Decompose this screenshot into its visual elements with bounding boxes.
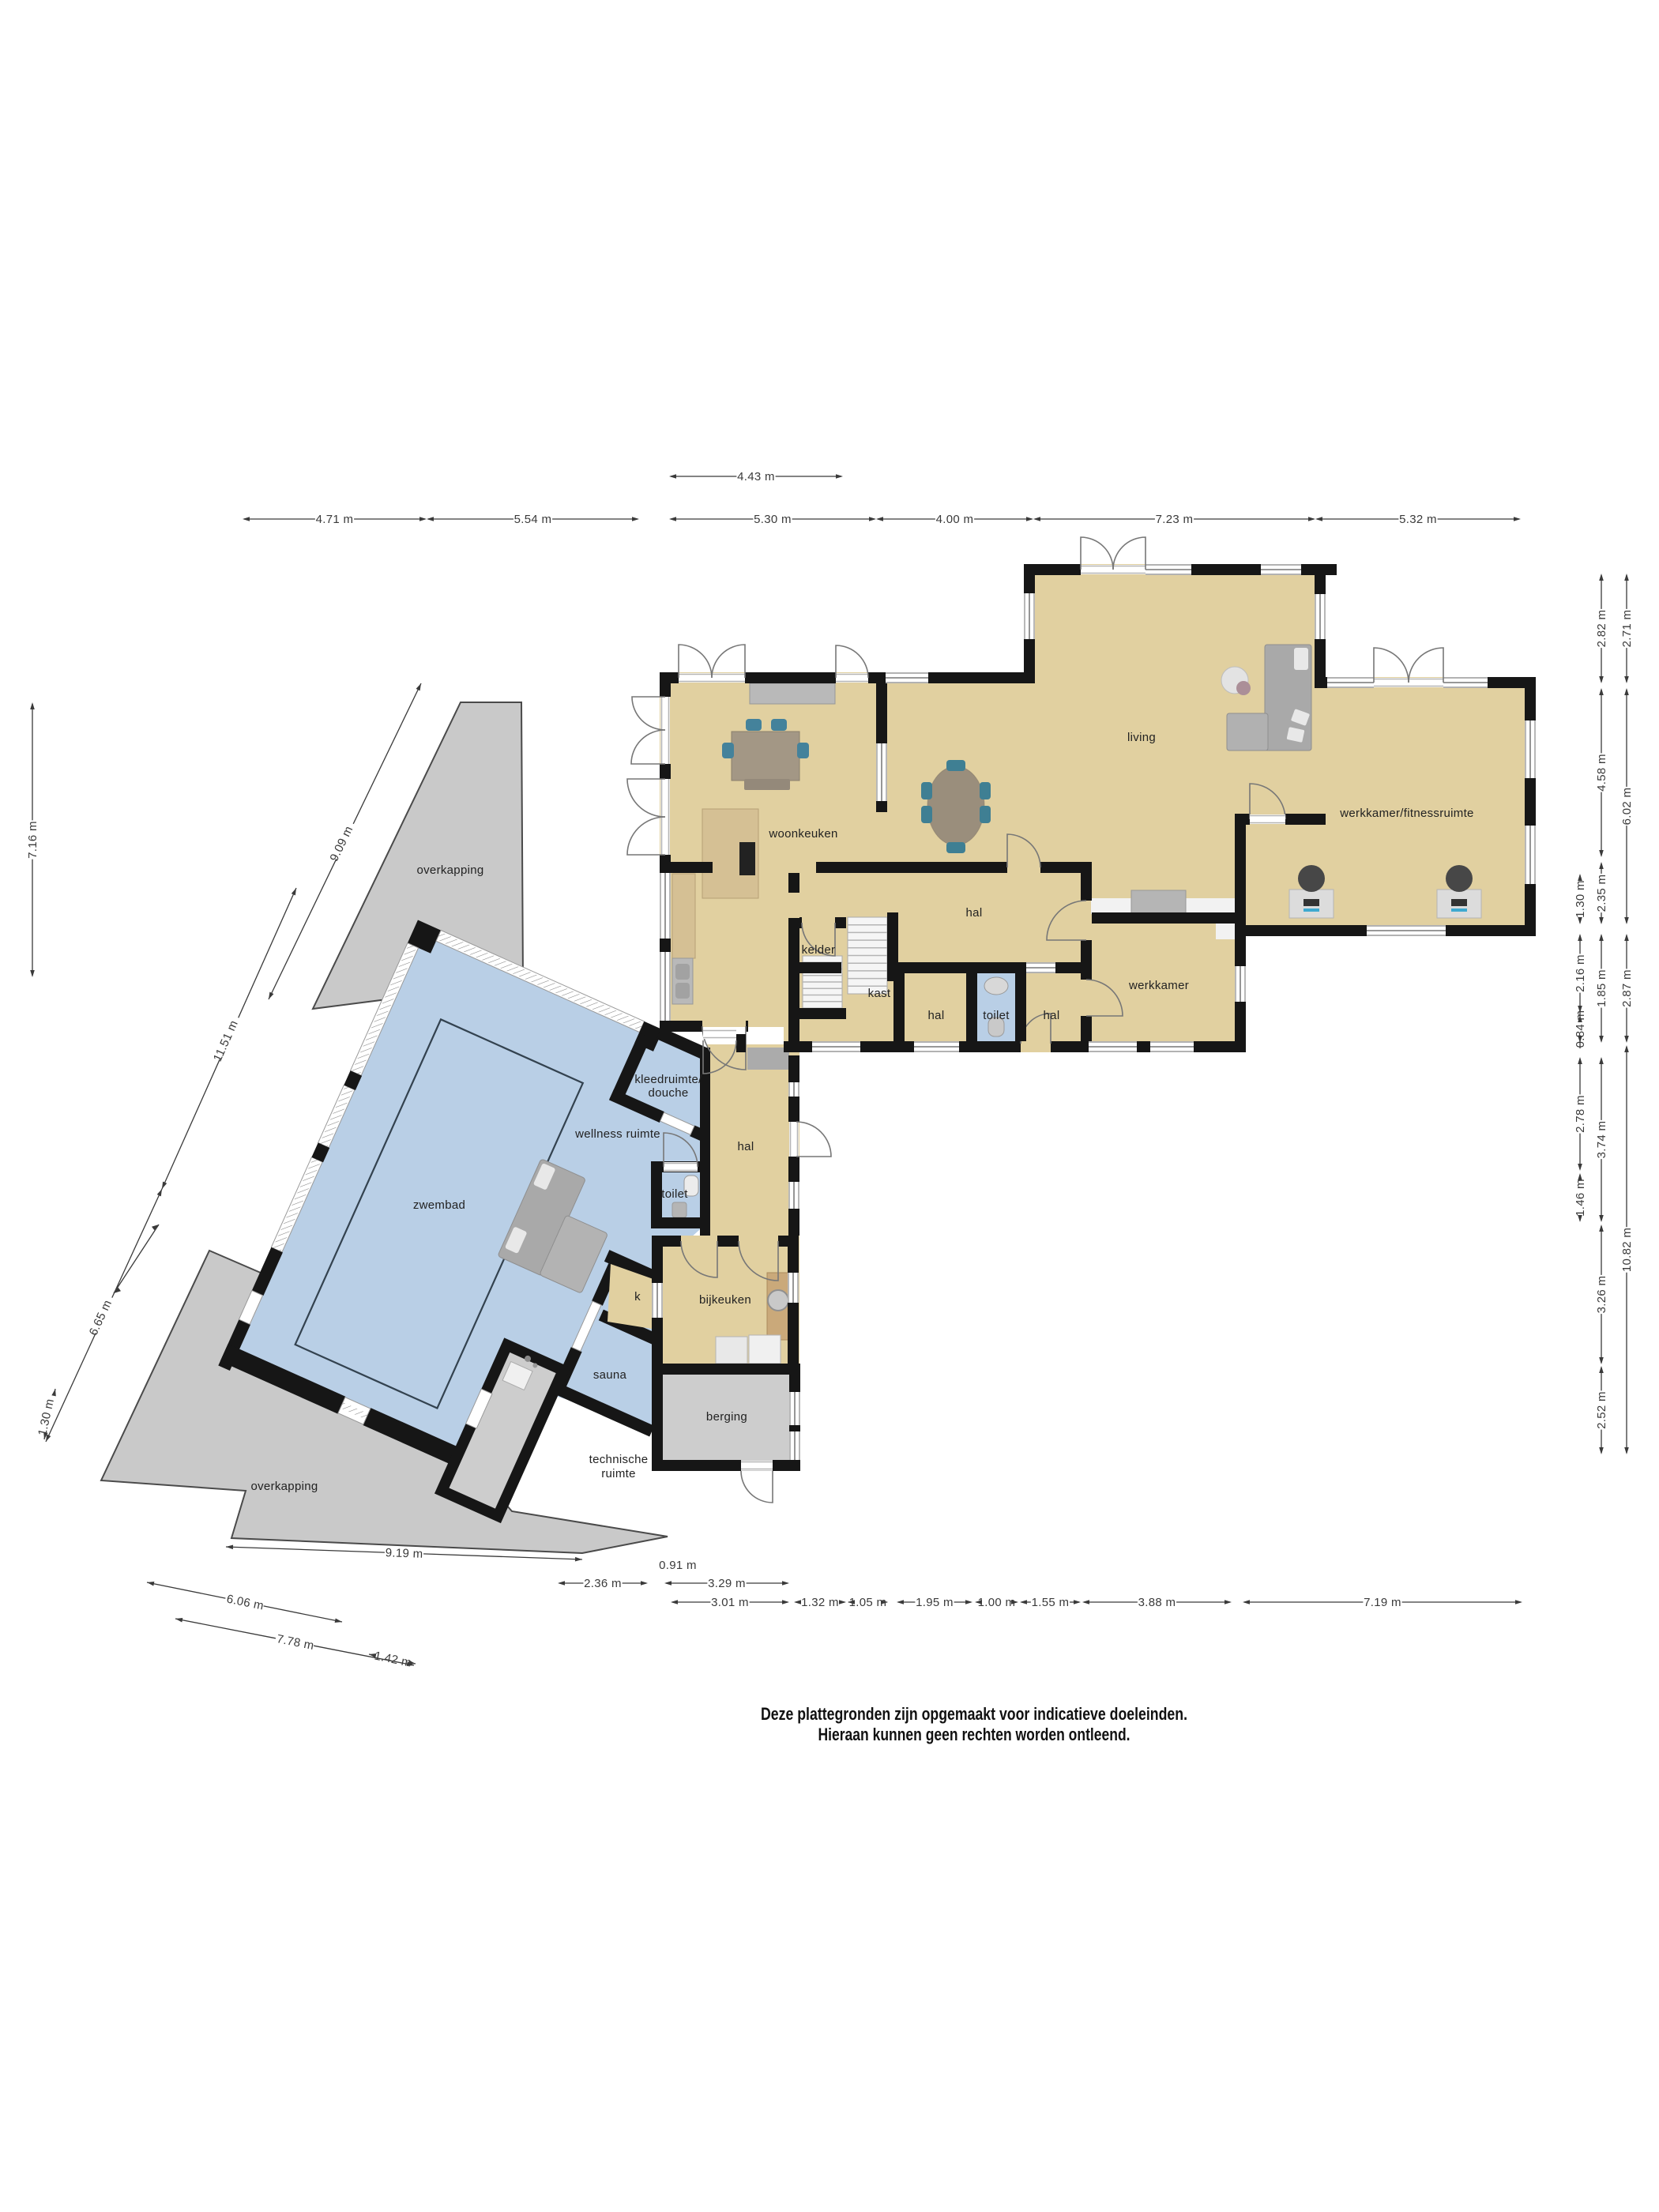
svg-text:3.01 m: 3.01 m — [711, 1596, 749, 1609]
svg-text:1.00 m: 1.00 m — [978, 1596, 1016, 1609]
svg-text:2.78 m: 2.78 m — [1574, 1095, 1587, 1133]
svg-text:ruimte: ruimte — [601, 1467, 635, 1480]
svg-text:7.16 m: 7.16 m — [26, 821, 39, 859]
svg-text:kelder: kelder — [802, 943, 836, 957]
svg-text:zwembad: zwembad — [413, 1198, 465, 1212]
svg-text:douche: douche — [648, 1086, 688, 1100]
svg-text:2.52 m: 2.52 m — [1595, 1391, 1608, 1429]
svg-text:kleedruimte/: kleedruimte/ — [634, 1073, 702, 1086]
svg-text:7.19 m: 7.19 m — [1364, 1596, 1401, 1609]
svg-text:6.02 m: 6.02 m — [1620, 788, 1634, 826]
svg-text:werkkamer: werkkamer — [1128, 979, 1189, 992]
svg-text:hal: hal — [1044, 1009, 1060, 1022]
svg-text:1.30 m: 1.30 m — [1574, 880, 1587, 918]
svg-text:2.36 m: 2.36 m — [584, 1577, 622, 1590]
svg-text:kast: kast — [868, 987, 891, 1000]
svg-text:10.82 m: 10.82 m — [1620, 1228, 1634, 1272]
svg-text:3.74 m: 3.74 m — [1595, 1121, 1608, 1159]
svg-text:2.71 m: 2.71 m — [1620, 610, 1634, 648]
svg-text:wellness ruimte: wellness ruimte — [574, 1127, 660, 1141]
svg-text:toilet: toilet — [983, 1009, 1010, 1022]
svg-text:5.32 m: 5.32 m — [1399, 513, 1437, 526]
svg-text:2.16 m: 2.16 m — [1574, 954, 1587, 992]
svg-text:k: k — [634, 1290, 641, 1303]
svg-text:1.32 m: 1.32 m — [801, 1596, 839, 1609]
svg-text:4.00 m: 4.00 m — [936, 513, 974, 526]
svg-text:0.84 m: 0.84 m — [1574, 1010, 1587, 1048]
svg-text:sauna: sauna — [593, 1368, 627, 1382]
svg-text:Deze plattegronden zijn opgema: Deze plattegronden zijn opgemaakt voor i… — [761, 1704, 1187, 1724]
svg-text:4.58 m: 4.58 m — [1595, 754, 1608, 792]
svg-text:1.05 m: 1.05 m — [849, 1596, 887, 1609]
svg-text:1.95 m: 1.95 m — [916, 1596, 954, 1609]
svg-text:hal: hal — [928, 1009, 945, 1022]
svg-text:living: living — [1127, 731, 1156, 744]
svg-text:overkapping: overkapping — [416, 863, 483, 877]
svg-text:1.46 m: 1.46 m — [1574, 1179, 1587, 1217]
svg-text:3.29 m: 3.29 m — [708, 1577, 746, 1590]
svg-text:3.88 m: 3.88 m — [1138, 1596, 1176, 1609]
svg-text:5.30 m: 5.30 m — [754, 513, 792, 526]
svg-text:3.26 m: 3.26 m — [1595, 1276, 1608, 1314]
svg-text:2.82 m: 2.82 m — [1595, 610, 1608, 648]
svg-text:1.55 m: 1.55 m — [1032, 1596, 1070, 1609]
svg-text:werkkamer/fitnessruimte: werkkamer/fitnessruimte — [1339, 807, 1473, 820]
svg-text:hal: hal — [966, 906, 983, 920]
svg-text:2.87 m: 2.87 m — [1620, 969, 1634, 1007]
svg-text:9.19 m: 9.19 m — [386, 1546, 423, 1561]
svg-text:4.43 m: 4.43 m — [737, 470, 775, 483]
svg-text:7.23 m: 7.23 m — [1156, 513, 1194, 526]
svg-text:2.35 m: 2.35 m — [1595, 875, 1608, 912]
svg-text:woonkeuken: woonkeuken — [768, 827, 837, 841]
svg-text:0.91 m: 0.91 m — [659, 1559, 697, 1572]
svg-text:overkapping: overkapping — [250, 1480, 318, 1493]
svg-text:hal: hal — [738, 1140, 754, 1153]
svg-text:4.71 m: 4.71 m — [316, 513, 354, 526]
svg-text:1.85 m: 1.85 m — [1595, 969, 1608, 1007]
svg-text:Hieraan kunnen geen rechten wo: Hieraan kunnen geen rechten worden ontle… — [818, 1725, 1130, 1744]
svg-text:toilet: toilet — [661, 1187, 688, 1201]
svg-text:5.54 m: 5.54 m — [514, 513, 552, 526]
svg-text:berging: berging — [706, 1410, 747, 1424]
svg-text:technische: technische — [589, 1453, 649, 1466]
svg-text:bijkeuken: bijkeuken — [699, 1293, 751, 1307]
